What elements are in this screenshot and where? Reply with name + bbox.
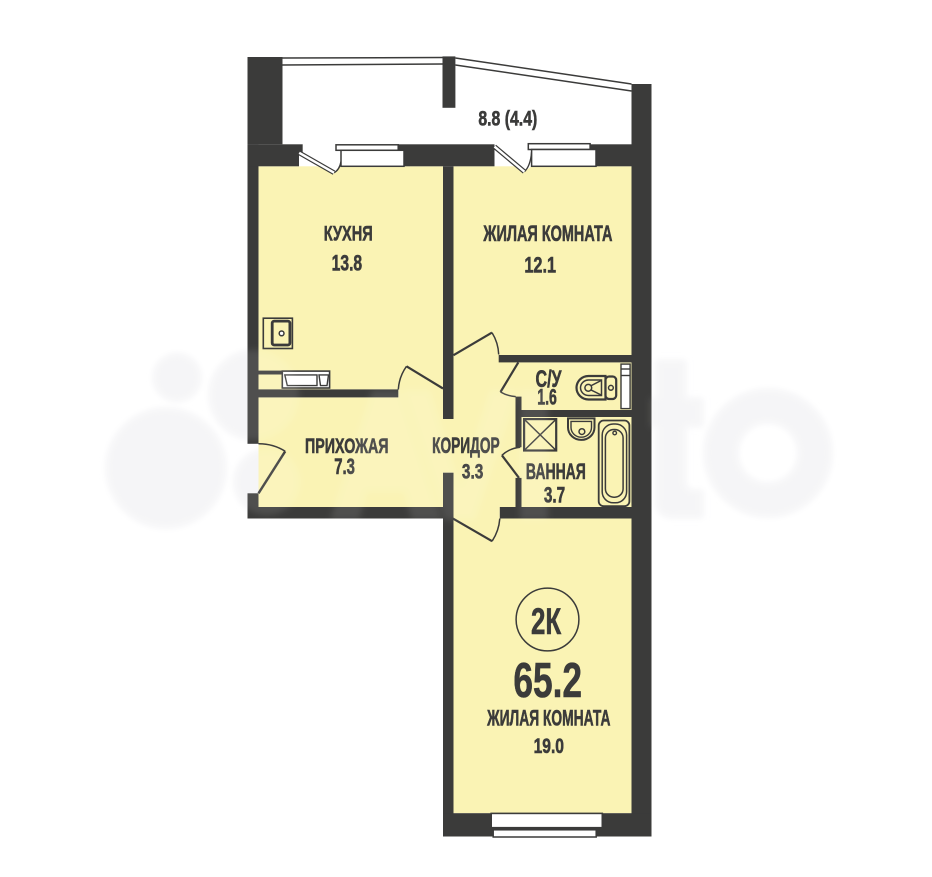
svg-text:19.0: 19.0 (534, 733, 564, 757)
svg-text:2К: 2К (531, 600, 562, 642)
svg-text:8.8 (4.4): 8.8 (4.4) (478, 106, 537, 130)
svg-text:ЖИЛАЯ КОМНАТА: ЖИЛАЯ КОМНАТА (486, 705, 610, 730)
svg-text:13.8: 13.8 (332, 252, 363, 276)
svg-text:12.1: 12.1 (524, 253, 556, 278)
svg-text:ЖИЛАЯ КОМНАТА: ЖИЛАЯ КОМНАТА (483, 221, 613, 246)
svg-text:65.2: 65.2 (513, 653, 582, 708)
svg-text:КУХНЯ: КУХНЯ (324, 221, 373, 246)
